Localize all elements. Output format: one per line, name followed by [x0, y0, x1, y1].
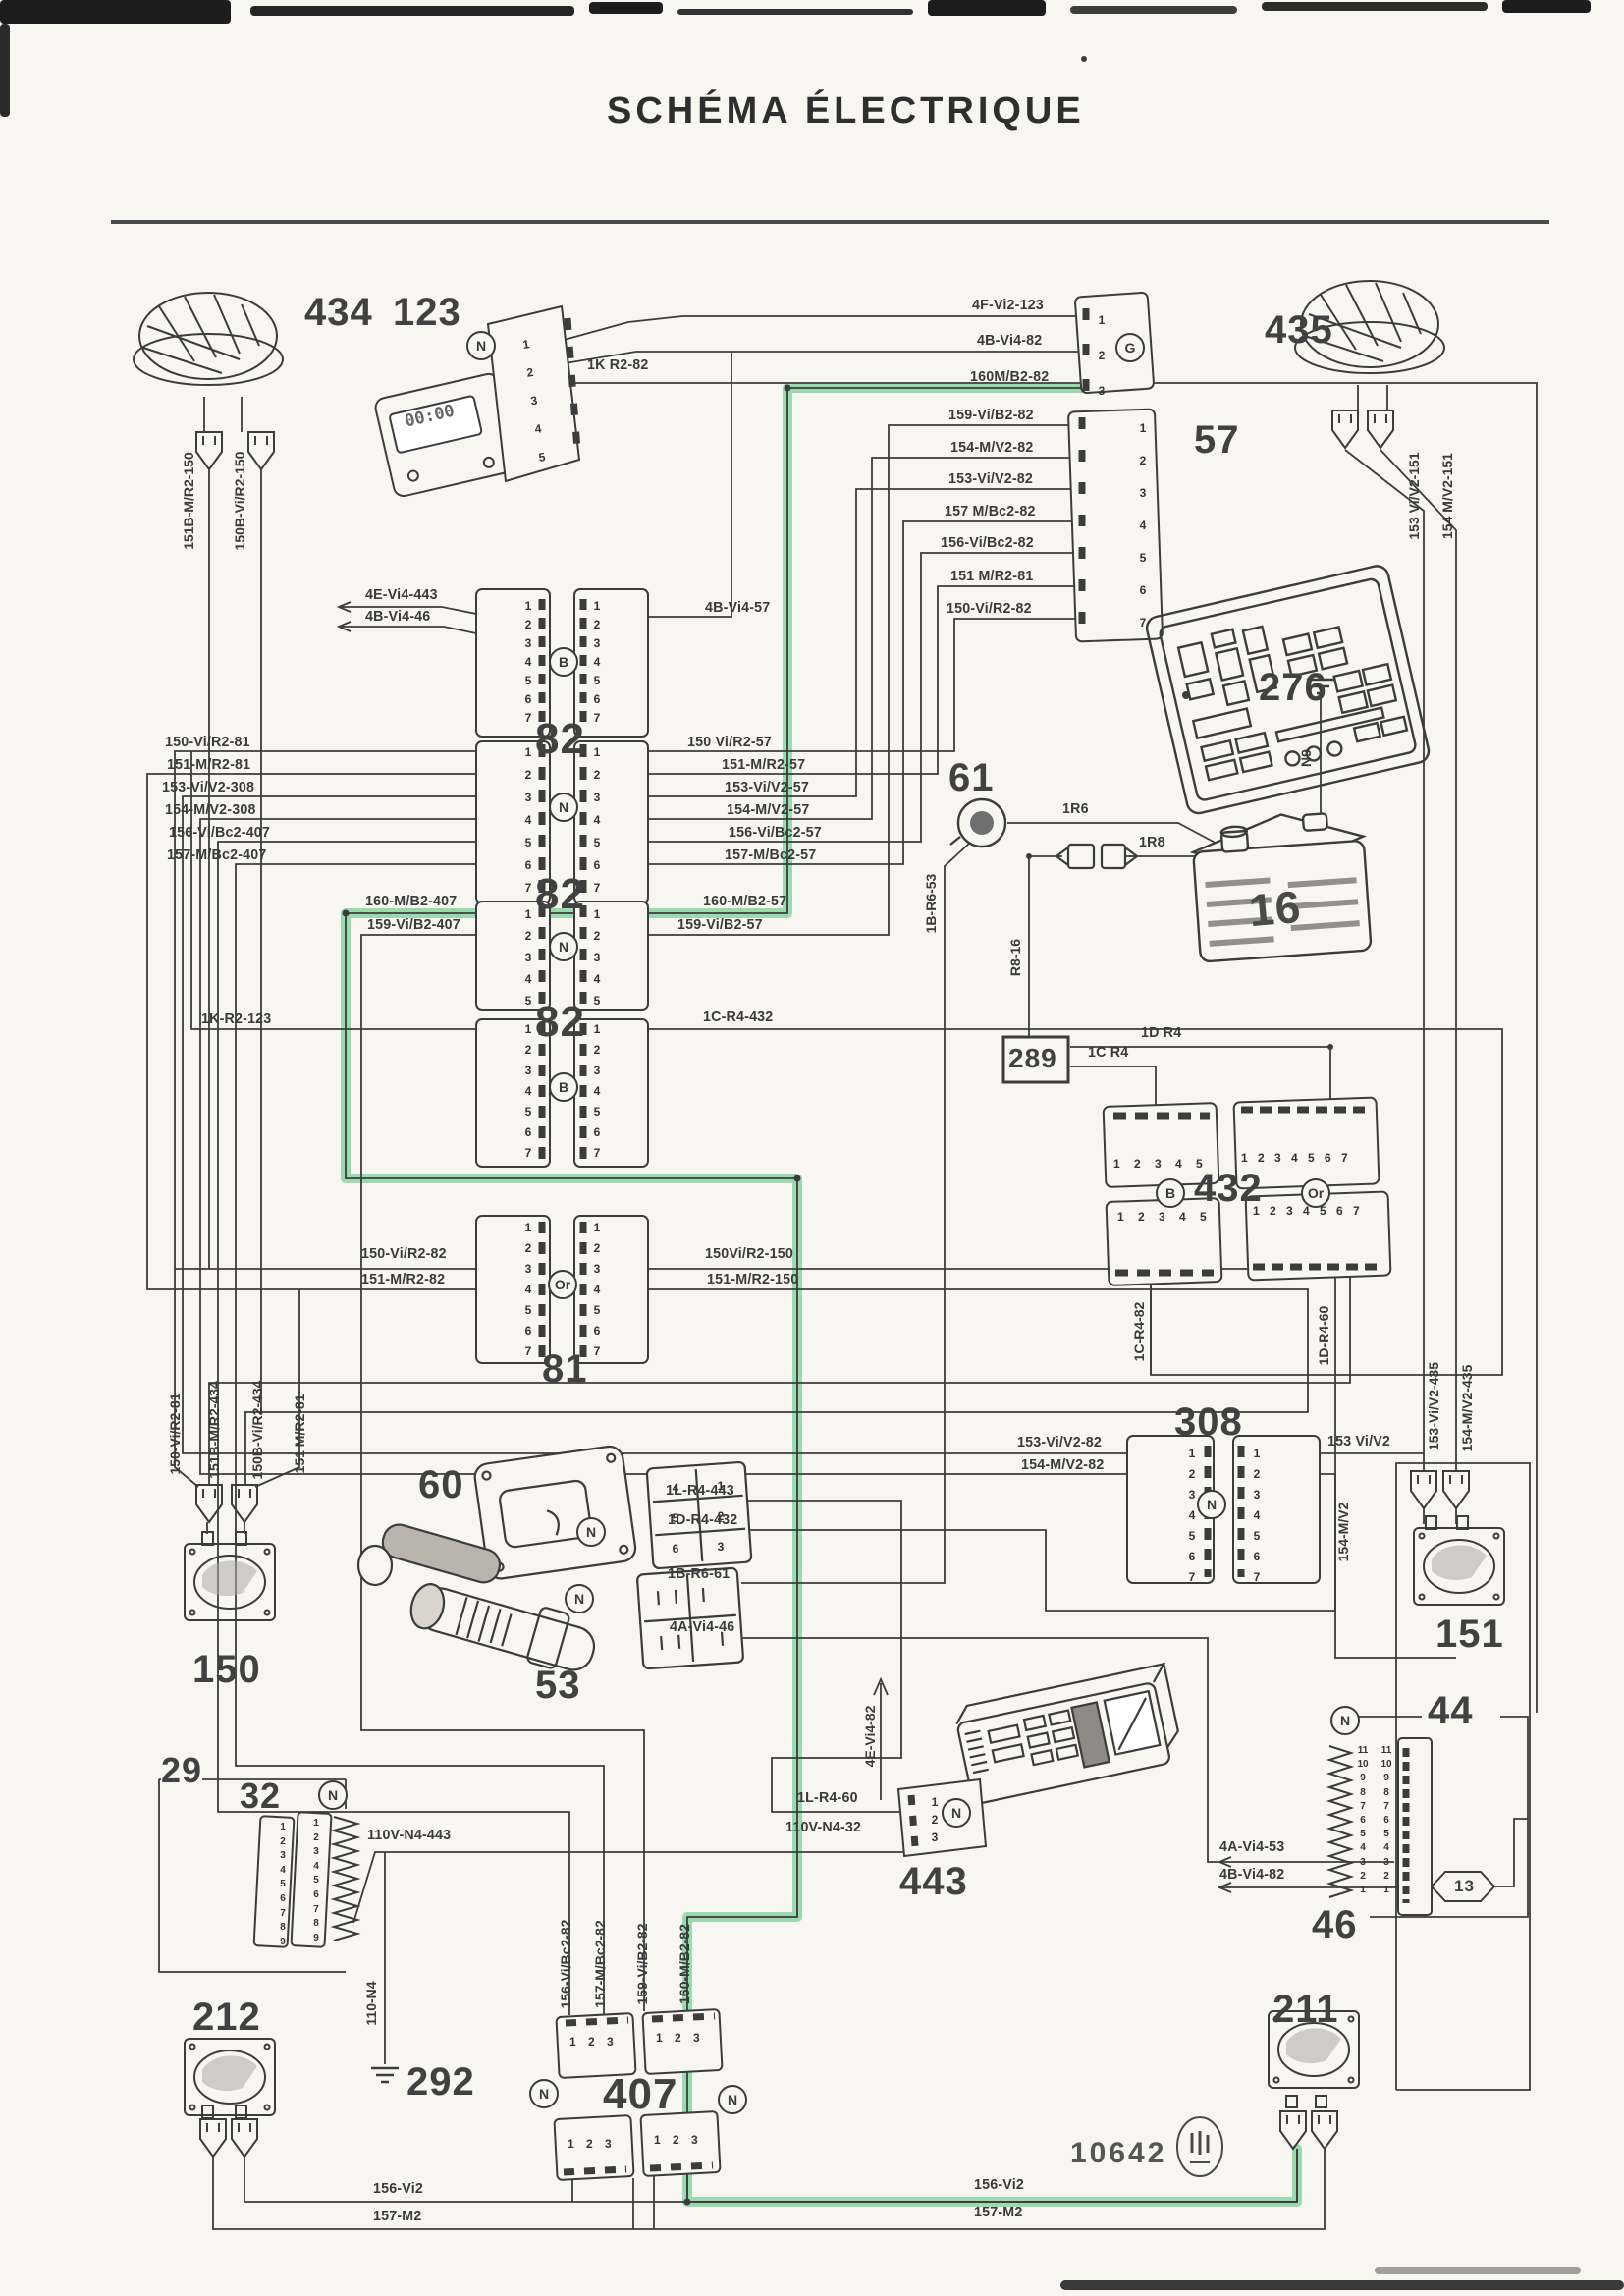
pin-numbers: 1 2 3 [713, 1471, 729, 1562]
horn-61-icon [950, 799, 1005, 847]
component-number-81: 81 [542, 1347, 588, 1392]
component-number-289: 289 [1008, 1043, 1057, 1074]
wire-label: 160-M/B2-407 [365, 893, 457, 909]
speaker-211-icon [1269, 2011, 1359, 2149]
wire-label: 154-M/V2-82 [950, 439, 1033, 456]
pin-numbers: 1 2 3 4 5 6 7 [520, 597, 536, 728]
wire-label: 4B-Vi4-82 [977, 332, 1042, 349]
component-number-46: 46 [1312, 1903, 1358, 1947]
pin-numbers: 1 2 3 [569, 2035, 614, 2049]
wire-label: 151B-M/R2-150 [181, 452, 196, 550]
wire-label: 157-M2 [373, 2208, 421, 2224]
wire-label: 150-Vi/R2-81 [165, 734, 250, 750]
pin-numbers: 11 10 9 8 7 6 5 4 3 2 1 [1353, 1744, 1373, 1897]
pin-numbers: 1 2 3 [656, 2031, 700, 2045]
wire-label: 150Vi/R2-150 [705, 1245, 793, 1262]
wire-label: 1R6 [1062, 800, 1089, 817]
connector-letter-n: N [1197, 1490, 1226, 1519]
speaker-151-icon [1411, 1471, 1504, 1605]
wire-label: 153 Vi/V2-151 [1406, 452, 1422, 539]
wire-label: 160-M/B2-82 [677, 1924, 692, 2004]
wire-label: 154-M/V2-82 [1021, 1456, 1104, 1473]
wire-label: 157-M/Bc2-82 [592, 1920, 608, 2008]
connector-letter-n: N [565, 1584, 594, 1613]
wire-label: 151-M/R2-82 [361, 1271, 445, 1287]
pin-numbers: 1 2 3 [1094, 302, 1110, 409]
wire-label: 110-N4 [363, 1981, 379, 2025]
wire-label: 154-M/V2 [1335, 1503, 1351, 1562]
wire-label: 4B-Vi4-46 [365, 608, 430, 625]
wire-label: 1D R4 [1141, 1024, 1181, 1041]
component-number-16: 16 [1247, 880, 1304, 937]
wire-label: 110V-N4-443 [367, 1827, 451, 1843]
wire-label: 150-Vi/R2-82 [361, 1245, 447, 1262]
wire-label: 160M/B2-82 [970, 368, 1049, 385]
schematic-page: SCHÉMA ÉLECTRIQUE [0, 0, 1624, 2296]
pin-numbers: 1 2 3 4 5 6 7 [589, 1218, 605, 1362]
wire-label: R8-16 [1007, 939, 1023, 976]
wire-label: 156-Vi/Bc2-82 [941, 534, 1034, 551]
connector-letter-b: B [549, 647, 578, 677]
component-number-57: 57 [1194, 418, 1240, 463]
ground-292-icon [371, 2068, 399, 2082]
wire-label: 159-Vi/B2-407 [367, 916, 460, 933]
connector-letter-n: N [549, 793, 578, 822]
connector-letter-n: N [576, 1517, 606, 1547]
connector-letter-n: N [549, 932, 578, 961]
wire-label: 156-Vi/Bc2-82 [558, 1920, 573, 2009]
connector-letter-n: N [1330, 1706, 1360, 1735]
wire-label: 1B-R6-53 [923, 874, 939, 934]
pin-numbers: 4 5 6 [668, 1473, 683, 1564]
pin-numbers: 1 2 3 4 5 6 7 [520, 1019, 536, 1164]
pin-numbers: 1 2 3 4 5 6 7 [589, 741, 605, 900]
component-number-53: 53 [535, 1664, 581, 1708]
pin-numbers: 1 2 3 4 5 6 7 [1249, 1444, 1265, 1588]
stamp-icon [1177, 2117, 1222, 2176]
wire-label: 1C R4 [1088, 1044, 1128, 1061]
component-number-150: 150 [192, 1648, 261, 1692]
component-number-82: 82 [535, 870, 585, 919]
component-number-44: 44 [1428, 1689, 1474, 1733]
wire-label: 157-M/Bc2-57 [725, 847, 816, 863]
wire-label: 153-Vi/V2-57 [725, 779, 809, 795]
wire-label: 1C-R4-82 [1131, 1302, 1147, 1362]
wire-label: 153-Vi/V2-82 [948, 470, 1033, 487]
pin-numbers: 1 2 3 4 5 6 7 [520, 741, 536, 900]
component-number-32: 32 [240, 1776, 281, 1817]
wire-label: 4B-Vi4-57 [705, 599, 770, 616]
wire-label: 1K-R2-123 [201, 1011, 271, 1027]
pin-numbers: 1 2 3 [927, 1793, 943, 1846]
component-number-434: 434 [304, 291, 373, 335]
component-number-308: 308 [1174, 1400, 1243, 1445]
wire-label: 153-Vi/V2-435 [1426, 1362, 1441, 1450]
wire-label: 150-Vi/R2-81 [167, 1393, 183, 1474]
pin-numbers: 1 2 3 4 5 [520, 903, 536, 1011]
wire-label: 1R8 [1139, 834, 1165, 850]
wire-label: 150 Vi/R2-57 [687, 734, 772, 750]
wire-label: 150B-Vi/R2-434 [249, 1381, 265, 1480]
radio-icon [953, 1664, 1184, 1804]
component-number-60: 60 [418, 1463, 464, 1507]
wire-label: 4A-Vi4-53 [1219, 1838, 1284, 1855]
wire-label: 151B-M/R2-434 [206, 1381, 222, 1479]
connector-letter-g: G [1115, 333, 1145, 362]
wire-label: 157-M2 [974, 2204, 1022, 2220]
wire-label: 154-M/V2-308 [165, 801, 256, 818]
component-number-151: 151 [1435, 1613, 1504, 1657]
schematic-canvas [0, 0, 1624, 2296]
component-number-13: 13 [1454, 1877, 1475, 1896]
wire-label: 150B-Vi/R2-150 [232, 452, 247, 551]
connector-32-icon [254, 1812, 357, 1947]
connector-letter-n: N [942, 1798, 971, 1828]
wire-label: 156-Vi/Bc2-57 [729, 824, 822, 841]
pin-numbers: 1 2 3 4 5 [589, 903, 605, 1011]
connector-letter-or: Or [548, 1270, 577, 1299]
wire-label: 153-Vi/V2-82 [1017, 1434, 1102, 1450]
speaker-435-icon [1295, 281, 1444, 448]
wire-label: 160-M/B2-57 [703, 893, 786, 909]
pin-numbers: 1 2 3 4 5 6 7 [520, 1218, 536, 1362]
wire-label: 154-M/V2-435 [1459, 1365, 1475, 1452]
wire-label: 159-Vi/B2-82 [634, 1923, 650, 2004]
component-number-276: 276 [1259, 666, 1327, 710]
pin-numbers: 1 2 3 4 5 6 7 [589, 597, 605, 728]
wire-label: 159-Vi/B2-82 [948, 407, 1034, 423]
component-number-435: 435 [1265, 308, 1333, 353]
pin-numbers: 1 2 3 [654, 2133, 698, 2147]
pin-numbers: 1 2 3 4 5 6 7 8 9 [308, 1817, 324, 1945]
wire-label: 156-Vi/Bc2-407 [169, 824, 270, 841]
wire-label: N9 [1298, 749, 1314, 767]
wire-label: 156-Vi2 [373, 2180, 423, 2197]
pin-numbers: 1 2 3 4 5 6 7 [1241, 1151, 1348, 1165]
wire-label: 4A-Vi4-46 [670, 1618, 734, 1635]
inline-connector-icon [1056, 845, 1137, 868]
connector-letter-n: N [466, 331, 496, 360]
pin-numbers: 11 10 9 8 7 6 5 4 3 2 1 [1377, 1744, 1396, 1897]
connector-letter-n: N [529, 2079, 559, 2108]
pin-numbers: 1 2 3 4 5 6 7 [1253, 1204, 1360, 1218]
component-number-407: 407 [603, 2070, 677, 2119]
drawing-number: 10642 [1070, 2137, 1166, 2170]
component-number-212: 212 [192, 1995, 261, 2040]
pin-numbers: 1 2 3 4 5 6 7 8 9 [275, 1821, 291, 1949]
pin-numbers: 1 2 3 4 5 6 7 [1184, 1444, 1200, 1588]
wire-label: 151-M/R2-57 [722, 756, 805, 773]
component-number-82: 82 [535, 998, 585, 1047]
speaker-434-icon [134, 293, 283, 469]
pin-numbers: 1 2 3 4 5 [1117, 1210, 1207, 1224]
wire-label: 151 M/R2-81 [950, 568, 1033, 584]
connector-letter-n: N [718, 2085, 747, 2114]
connector-letter-b: B [1156, 1178, 1185, 1208]
wire-label: 159-Vi/B2-57 [677, 916, 763, 933]
wire-label: 151 M/R2-81 [292, 1394, 307, 1474]
pin-numbers: 1 2 3 4 5 6 7 [1135, 412, 1151, 639]
wire-label: 156-Vi2 [974, 2176, 1024, 2193]
component-number-292: 292 [406, 2060, 475, 2105]
wire-label: 151-M/R2-81 [167, 756, 250, 773]
component-number-82: 82 [535, 715, 585, 764]
wire-label: 4E-Vi4-443 [365, 586, 438, 603]
wire-label: 153-Vi/V2-308 [162, 779, 254, 795]
component-number-211: 211 [1272, 1988, 1339, 2032]
connector-letter-b: B [549, 1072, 578, 1102]
wire-label: 4F-Vi2-123 [972, 297, 1044, 313]
wire-label: 157-M/Bc2-407 [167, 847, 266, 863]
wire-label: 4B-Vi4-82 [1219, 1866, 1284, 1883]
wire-label: 151-M/R2-150 [707, 1271, 798, 1287]
wire-label: 150-Vi/R2-82 [947, 600, 1032, 617]
pin-numbers: 1 2 3 [568, 2137, 612, 2151]
speaker-212-icon [185, 2039, 275, 2157]
speaker-150-icon [185, 1485, 275, 1620]
component-number-61: 61 [948, 756, 995, 800]
component-number-123: 123 [393, 291, 461, 335]
pin-numbers: 1 2 3 4 5 6 7 [589, 1019, 605, 1164]
wire-label: 1C-R4-432 [703, 1009, 773, 1025]
wire-label: 153 Vi/V2 [1327, 1433, 1390, 1449]
wire-label: 4E-Vi4-82 [862, 1706, 878, 1768]
wire-label: 1L-R4-60 [797, 1789, 858, 1806]
component-number-443: 443 [899, 1860, 968, 1904]
component-number-29: 29 [161, 1750, 202, 1791]
wire-label: 154 M/V2-151 [1439, 453, 1455, 539]
pin-numbers: 1 2 3 4 5 [1113, 1157, 1203, 1171]
connector-letter-n: N [318, 1780, 348, 1810]
wire-label: 1K R2-82 [587, 356, 649, 373]
wire-label: 1D-R4-60 [1316, 1306, 1331, 1366]
wire-label: 154-M/V2-57 [727, 801, 809, 818]
wire-label: 1B-R6-61 [668, 1565, 730, 1582]
wire-label: 157 M/Bc2-82 [945, 503, 1036, 519]
wire-label: 110V-N4-32 [785, 1819, 861, 1835]
